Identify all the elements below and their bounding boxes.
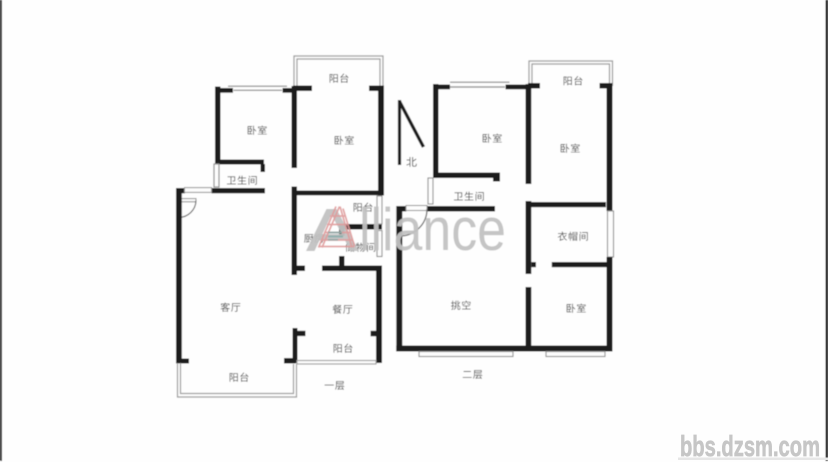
svg-text:lliance: lliance [359,196,506,263]
svg-text:bbs.dzsm.com: bbs.dzsm.com [680,431,820,462]
